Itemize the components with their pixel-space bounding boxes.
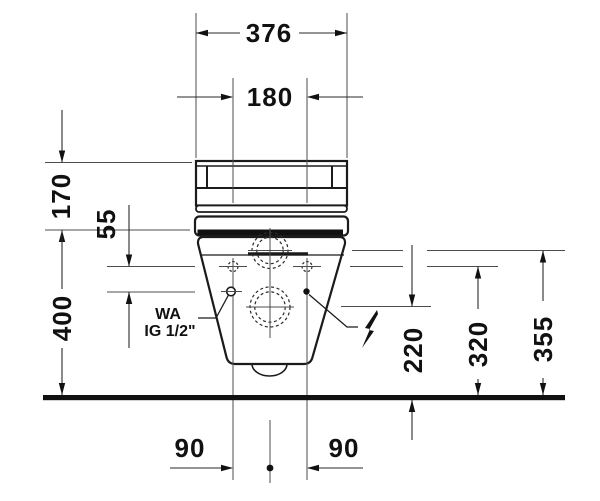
technical-drawing-page: WA IG 1/2" 376 180 170 400: [0, 0, 600, 501]
ceramic-bowl: [198, 237, 345, 364]
dim-55-label: 55: [91, 209, 121, 240]
dim-320-arrow-bottom: [475, 383, 481, 395]
dim-outlet-height: 220: [341, 245, 431, 440]
dim-355-arrow-top: [540, 251, 546, 263]
electrical-connection-dot: [303, 288, 309, 294]
water-label-line2: IG 1/2": [144, 323, 195, 340]
dim-400-arrow-bottom: [59, 383, 65, 395]
dim-400-label: 400: [47, 295, 77, 341]
dim-220-arrow-top: [409, 295, 415, 307]
dim-hole-spacing: 180: [177, 82, 363, 112]
dim-55-arrow-bottom: [126, 292, 132, 304]
dim-overall-width: 376: [196, 18, 347, 48]
lightning-bolt-icon: [362, 310, 378, 348]
dim-220-label: 220: [398, 327, 428, 373]
dim-320-label: 320: [463, 321, 493, 367]
dim-170-arrow-top: [59, 151, 65, 163]
dim-180-arrow-right: [307, 94, 319, 100]
toilet-fixture: [195, 161, 348, 376]
toilet-installation-diagram: WA IG 1/2" 376 180 170 400: [0, 0, 600, 501]
dim-90l-arrow: [221, 465, 233, 471]
dim-180-label: 180: [247, 82, 293, 112]
dim-376-arrow-left: [196, 30, 208, 36]
dim-inlet-height: 355: [352, 251, 565, 396]
dim-180-arrow-left: [221, 94, 233, 100]
outlet-arc: [252, 364, 287, 376]
hinge-strip: [196, 206, 347, 213]
dim-170-label: 170: [46, 173, 76, 219]
water-label-line1: WA: [155, 306, 181, 323]
centerline-dot: [267, 465, 274, 472]
floor-line: [43, 395, 565, 400]
seat-lid: [196, 161, 347, 206]
dim-220-arrow-bottom: [409, 400, 415, 412]
dim-376-label: 376: [246, 18, 292, 48]
dim-355-arrow-bottom: [540, 383, 546, 395]
dim-320-arrow-top: [475, 267, 481, 279]
dim-90l-label: 90: [175, 433, 206, 463]
dim-hole-offset-left: 90: [170, 433, 233, 471]
dim-376-arrow-right: [335, 30, 347, 36]
dim-55-arrow-top: [126, 255, 132, 267]
dim-355-label: 355: [528, 316, 558, 362]
dim-90r-label: 90: [329, 433, 360, 463]
dim-90r-arrow: [307, 465, 319, 471]
dim-hole-offset-right: 90: [307, 433, 363, 471]
